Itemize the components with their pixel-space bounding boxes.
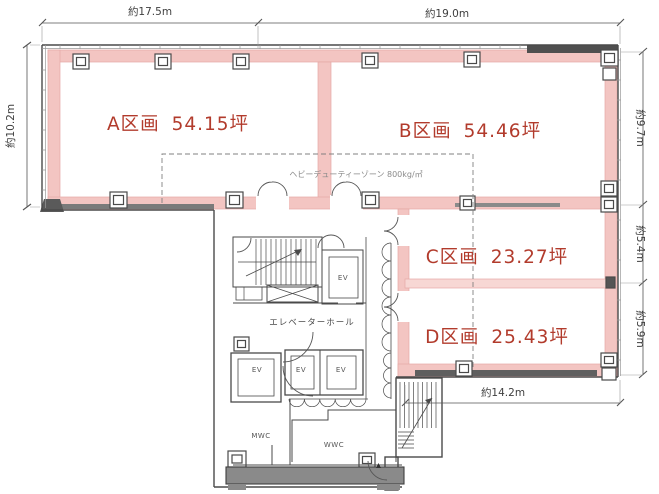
ev-door-scallops	[289, 399, 366, 407]
upper-stair-treads	[238, 239, 316, 285]
elevator-hall-label: エレベーターホール	[269, 318, 355, 328]
core-base-band	[226, 467, 404, 484]
dim-right-middle: 約5.4m	[634, 225, 647, 262]
zone-d-area: 25.43坪	[491, 327, 568, 348]
lower-stair-treads	[398, 382, 436, 448]
dim-top-left: 約17.5m	[128, 5, 172, 18]
zone-c-area: 23.27坪	[491, 247, 568, 268]
door-zone-c	[384, 217, 398, 245]
zone-b-area: 54.46坪	[464, 121, 541, 142]
mwc-label: MWC	[251, 432, 270, 440]
ev-shaft-1	[231, 353, 281, 402]
floor-plan-page: 約17.5m 約19.0m 約10.2m 約9.7m 約5.4m 約5.9m 約…	[0, 0, 659, 494]
zone-a-name: A区画	[107, 114, 160, 135]
dim-bottom: 約14.2m	[481, 386, 525, 399]
ev-label-2: EV	[296, 366, 306, 374]
wwc-outline	[292, 410, 396, 462]
heavy-duty-zone-label: ヘビーデューティーゾーン 800kg/㎡	[289, 169, 422, 179]
zone-b-name: B区画	[399, 121, 452, 142]
shutter-scallops-right	[382, 243, 391, 398]
ev-label-upper: EV	[338, 274, 348, 282]
zone-b-label: B区画54.46坪	[399, 121, 541, 142]
upper-stair-arrow	[246, 250, 300, 276]
zone-a-area: 54.15坪	[172, 114, 249, 135]
lower-staircase	[398, 382, 436, 448]
door-zone-a	[258, 182, 287, 196]
ev-label-1: EV	[252, 366, 262, 374]
zone-c-name: C区画	[426, 247, 479, 268]
wwc-label: WWC	[324, 441, 344, 449]
ev-label-3: EV	[336, 366, 346, 374]
core	[226, 237, 404, 490]
dim-right-lower: 約5.9m	[634, 310, 647, 347]
zone-a-label: A区画54.15坪	[107, 114, 249, 135]
dim-left: 約10.2m	[4, 104, 17, 148]
dim-right-upper: 約9.7m	[634, 109, 647, 146]
door-elevator-hall	[283, 332, 313, 396]
zone-c-label: C区画23.27坪	[426, 247, 568, 268]
door-upper-stairs	[237, 238, 251, 252]
dim-top-right: 約19.0m	[425, 7, 469, 20]
wall-left	[48, 50, 60, 208]
door-zone-b	[332, 182, 361, 196]
zone-d-name: D区画	[425, 327, 479, 348]
zone-d-label: D区画25.43坪	[425, 327, 569, 348]
stair-tower-outline	[396, 378, 442, 457]
floor-plan-svg: 約17.5m 約19.0m 約10.2m 約9.7m 約5.4m 約5.9m 約…	[0, 0, 659, 494]
wall-cd-divider	[405, 279, 606, 288]
lower-stair-arrow	[402, 398, 432, 448]
